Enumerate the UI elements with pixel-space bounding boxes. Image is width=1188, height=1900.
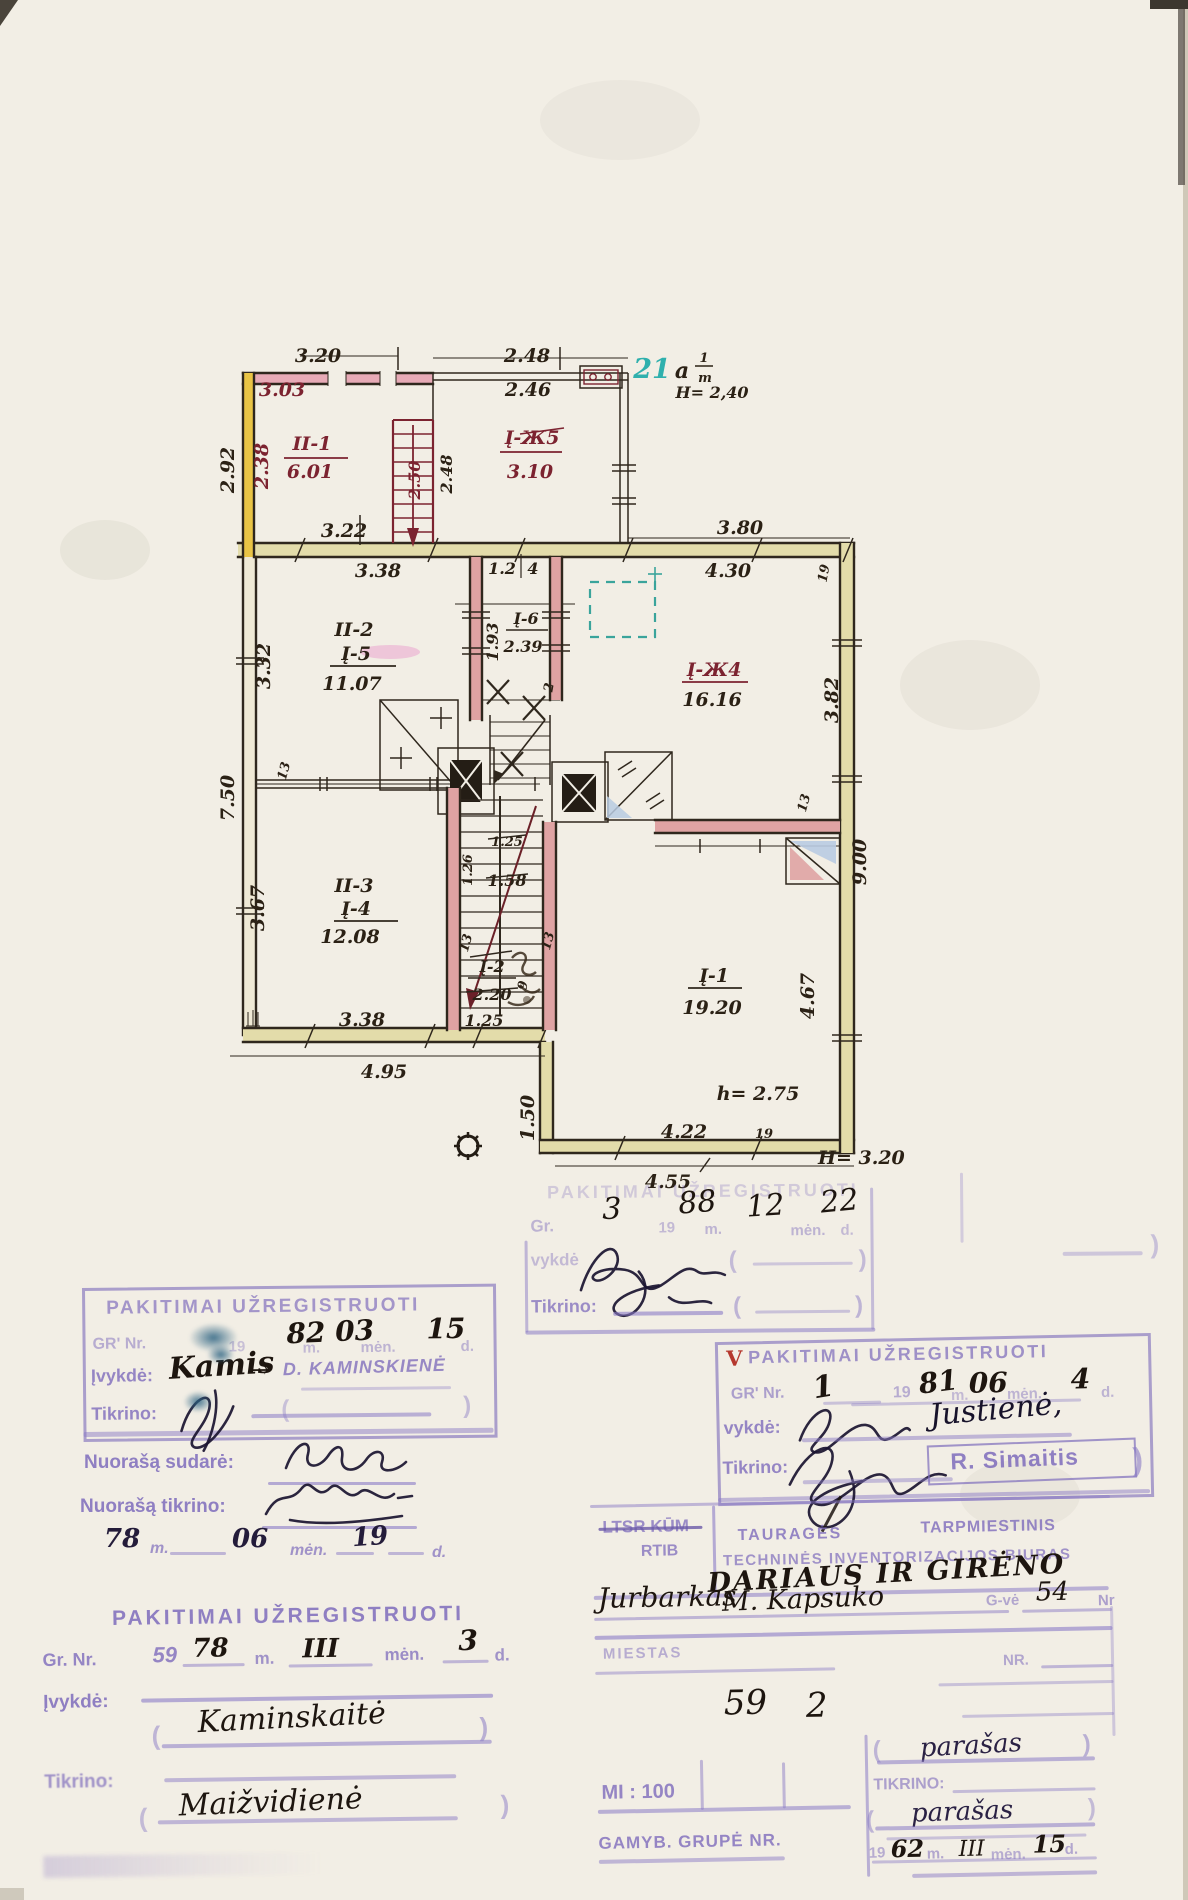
org-abbrev2: RTIB	[641, 1542, 679, 1561]
hw-day: 15	[426, 1312, 465, 1345]
stamp-border	[525, 1328, 875, 1335]
stamp-v-mark: V	[726, 1346, 743, 1371]
scale-label: MI : 100	[601, 1780, 675, 1804]
hw-building-number: 2	[806, 1685, 828, 1725]
paren-close: )	[1082, 1730, 1091, 1758]
stamp-m-label: m.	[254, 1649, 274, 1669]
hw-copy-day: 19	[351, 1521, 389, 1553]
stamp-border	[870, 1188, 874, 1330]
copy-m-label: m.	[150, 1540, 169, 1558]
hw-city: Jurbarkas	[597, 1579, 736, 1615]
stamp-title: PAKITIMAI UŽREGISTRUOTI	[112, 1602, 464, 1631]
stamp-border	[525, 1241, 529, 1333]
stamp-smear	[443, 1660, 489, 1664]
tikrino-label: TIKRINO:	[873, 1775, 944, 1794]
hw-year: 88	[677, 1184, 718, 1222]
copy-dash	[388, 1552, 424, 1555]
paren-close: )	[1132, 1441, 1143, 1478]
paren-close: )	[859, 1246, 867, 1274]
gamyb-label: GAMYB. GRUPĖ NR.	[598, 1830, 782, 1854]
hw-year: 78	[192, 1633, 229, 1664]
stamp-tikrino-label: Tikrino:	[44, 1771, 114, 1794]
paren-open: (	[139, 1803, 148, 1834]
date-year-prefix: 19	[869, 1844, 886, 1861]
hw-day: 22	[819, 1182, 860, 1220]
signature-copy-tikrino	[262, 1476, 417, 1528]
signature-tikrino	[169, 1380, 250, 1459]
stamp-tikrino-label: Tikrino:	[91, 1403, 157, 1425]
stamp-tikrino-label: Tikrino:	[531, 1296, 597, 1318]
paren-close: )	[1088, 1794, 1097, 1822]
stamp-gr-label: GR' Nr.	[731, 1385, 785, 1404]
copy-men-label: mėn.	[290, 1542, 327, 1560]
paren-close: )	[855, 1292, 863, 1320]
stamp-border	[960, 1173, 964, 1243]
date-d-label: d.	[1065, 1841, 1079, 1858]
stamp-gr-label: Gr.	[530, 1216, 554, 1236]
stamped-checker-name: R. Simaitis	[950, 1443, 1080, 1475]
stamp-line	[753, 1262, 853, 1266]
copy-line	[262, 1526, 417, 1529]
stamp-d-label: d.	[494, 1645, 509, 1665]
paren-close: )	[1150, 1229, 1159, 1260]
paren-open: (	[866, 1807, 875, 1835]
stamp-gr-label: Gr. Nr.	[42, 1649, 96, 1671]
paren-close: )	[463, 1392, 471, 1420]
paren-open: (	[729, 1247, 737, 1275]
org-name-2: TARPMIESTINIS	[920, 1517, 1056, 1538]
nr-label: NR.	[1003, 1652, 1029, 1669]
copy-tikrino-label: Nuorašą tikrino:	[80, 1496, 226, 1518]
paren-close: )	[479, 1712, 488, 1743]
hw-day: 3	[458, 1624, 478, 1657]
stamp-men-label: mėn.	[384, 1645, 424, 1666]
hw-month: III	[302, 1634, 339, 1665]
stamp-blotch	[43, 1852, 323, 1878]
org-name-1: TAURAGĖS	[737, 1525, 842, 1545]
scanned-document-page: 3.20 3.03 2.48 2.46 21 a 1 m H= 2,40 2.9…	[0, 0, 1188, 1900]
paren-close: )	[500, 1789, 509, 1820]
copy-d-label: d.	[432, 1544, 446, 1562]
hw-copy-month: 06	[232, 1524, 268, 1554]
paren-open: (	[733, 1293, 741, 1321]
hw-plot-number: 59	[723, 1683, 767, 1724]
stamp-men-label: mėn.	[790, 1222, 825, 1239]
hw-date: 82 03	[286, 1313, 375, 1350]
hw-day: 4	[1070, 1362, 1090, 1395]
hw-date-day: 15	[1032, 1829, 1066, 1859]
hw-month: 12	[745, 1187, 785, 1224]
copy-sudare-label: Nuorašą sudarė:	[84, 1452, 234, 1474]
stamp-vykde-label: vykdė:	[723, 1417, 780, 1439]
miestas-label: MIESTAS	[603, 1644, 683, 1663]
stamp-registration-left: PAKITIMAI UŽREGISTRUOTI GR' Nr. 19 m. mė…	[0, 0, 593, 601]
hw-house-number: 54	[1035, 1577, 1069, 1608]
stamp-d-label: d.	[840, 1222, 853, 1239]
copy-dash	[170, 1552, 226, 1555]
hw-copy-year: 78	[104, 1524, 140, 1554]
signature-sudare	[278, 1432, 413, 1482]
stamp-smear	[1063, 1251, 1143, 1256]
stamp-nr-value: 59	[152, 1642, 177, 1668]
stamp-ivykde-label: Įvykdė:	[43, 1691, 109, 1714]
paren-open: (	[281, 1396, 289, 1424]
stamp-vykde-label: vykdė	[531, 1250, 579, 1270]
gve-label: G-vė	[986, 1592, 1020, 1610]
paren-open: (	[151, 1720, 160, 1751]
stamp-gr-label: GR' Nr.	[92, 1335, 146, 1354]
hw-arrow: →	[251, 1358, 270, 1383]
stamp-ivykde-label: Įvykdė:	[91, 1365, 153, 1387]
stamp-d-label: d.	[1101, 1384, 1115, 1401]
stamp-line	[755, 1310, 850, 1314]
hw-group-nr: 3	[602, 1192, 621, 1227]
